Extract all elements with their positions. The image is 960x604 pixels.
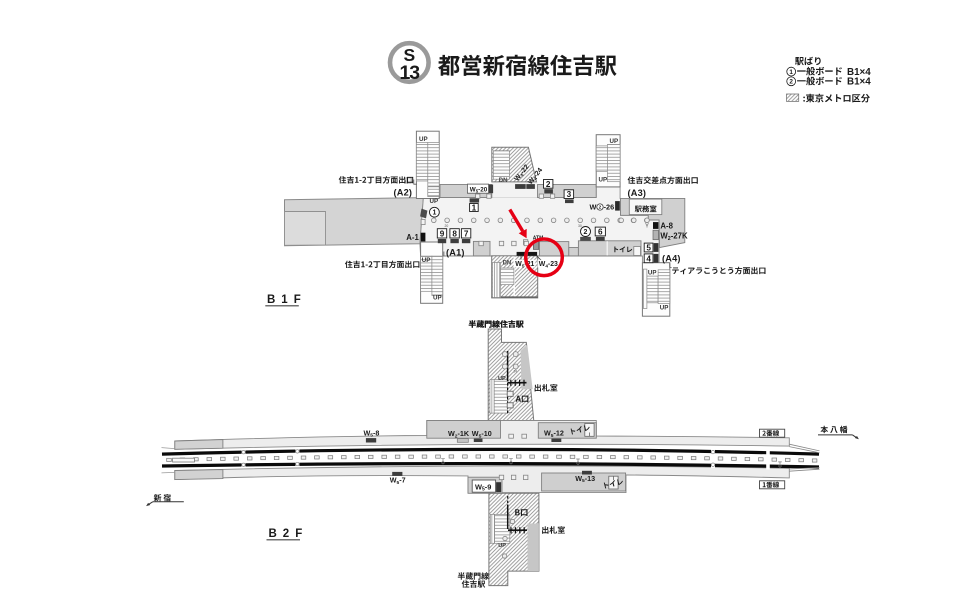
svg-text:UP: UP (433, 295, 442, 302)
svg-text:UP: UP (648, 270, 657, 277)
svg-text:W5-12: W5-12 (544, 429, 564, 439)
svg-text:W: W (590, 203, 597, 212)
svg-text:W2-27K: W2-27K (660, 232, 688, 242)
svg-text:(A1): (A1) (446, 248, 465, 258)
svg-text:2: 2 (599, 205, 602, 211)
svg-text:2: 2 (584, 229, 588, 236)
svg-text:DN: DN (503, 260, 512, 266)
svg-text:1: 1 (432, 210, 436, 217)
svg-text:W5-10: W5-10 (472, 429, 492, 439)
svg-text:7: 7 (464, 229, 469, 238)
svg-text:2: 2 (546, 180, 551, 189)
svg-text:2: 2 (789, 79, 793, 86)
svg-text:W2-1K: W2-1K (448, 429, 470, 439)
svg-text:DN: DN (499, 178, 508, 184)
svg-text:UP: UP (422, 257, 431, 264)
svg-text:30: 30 (578, 224, 582, 228)
svg-text:4: 4 (646, 254, 651, 263)
svg-text:B1×4: B1×4 (847, 77, 871, 88)
svg-text:13: 13 (399, 62, 420, 84)
svg-text:6: 6 (598, 227, 603, 236)
svg-text:B 1 F: B 1 F (267, 294, 302, 306)
svg-text:(A4): (A4) (662, 254, 681, 264)
svg-text:1: 1 (472, 203, 477, 212)
svg-text:1: 1 (789, 69, 793, 76)
svg-text:UP: UP (498, 376, 506, 382)
svg-text:A-1: A-1 (406, 233, 419, 242)
svg-text:W5-20: W5-20 (470, 186, 488, 193)
svg-text:UP: UP (660, 305, 669, 312)
svg-text:5: 5 (646, 243, 651, 252)
svg-text:24: 24 (514, 370, 518, 374)
svg-text:UP: UP (610, 138, 619, 145)
svg-text:9: 9 (440, 229, 445, 238)
svg-text:UP: UP (419, 136, 428, 143)
svg-text:-26: -26 (604, 203, 615, 212)
svg-text:UP: UP (430, 198, 439, 205)
svg-text:B 2 F: B 2 F (269, 528, 304, 540)
svg-text:W5-13: W5-13 (575, 474, 595, 484)
svg-text:8: 8 (452, 229, 457, 238)
svg-text:(A2): (A2) (394, 188, 413, 198)
svg-text:UP: UP (599, 177, 608, 184)
svg-text:3: 3 (567, 190, 572, 199)
svg-text:A-8: A-8 (660, 221, 673, 230)
svg-text:(A3): (A3) (628, 188, 647, 198)
svg-text:UP: UP (498, 543, 506, 549)
svg-text:W4-23: W4-23 (539, 261, 558, 268)
svg-text:20: 20 (445, 224, 449, 228)
